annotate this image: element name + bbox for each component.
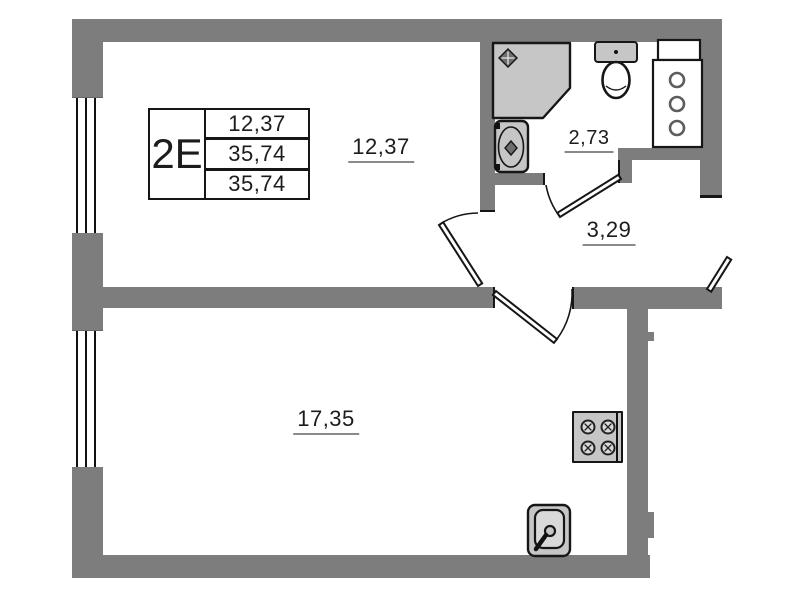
wall-lowerroom-east [627,309,648,578]
floor-plan: 2Е 12,37 35,74 35,74 12,37 2,73 3,29 17,… [0,0,799,600]
unit-label: 2Е [150,110,206,198]
title-block-row-total: 35,74 [206,137,308,170]
title-block: 2Е 12,37 35,74 35,74 [148,108,310,200]
wall-right-top [700,19,722,198]
wall-under-shaft [618,148,702,160]
wall-middle [103,287,495,308]
window-lower [72,330,103,469]
wall-left-upper [72,19,103,97]
wall-pier-lower [648,512,654,538]
title-block-values: 12,37 35,74 35,74 [206,110,308,198]
area-label-hallway: 3,29 [583,217,636,246]
door-upper-room [439,213,482,286]
wash-basin-icon [495,121,528,172]
wall-bath-west [480,42,495,212]
door-bathroom [546,175,621,217]
wall-pier-upper [648,332,654,341]
area-label-bathroom: 2,73 [565,127,614,153]
stove-icon [573,412,622,462]
wall-left-middle [72,233,103,330]
wall-top [72,19,722,42]
ventilation-shaft [653,40,702,147]
wall-hall-south [572,287,722,309]
door-lower-room [493,289,572,343]
title-block-row: 12,37 [206,110,308,137]
window-upper [72,97,103,235]
kitchen-sink-icon [528,505,570,556]
area-label-lower-room: 17,35 [293,406,359,435]
title-block-row: 35,74 [206,171,308,198]
toilet-icon [595,42,637,98]
wall-bath-south [480,173,545,185]
wall-bottom [72,555,650,578]
shower-icon [493,43,570,118]
area-label-upper-room: 12,37 [348,134,414,163]
